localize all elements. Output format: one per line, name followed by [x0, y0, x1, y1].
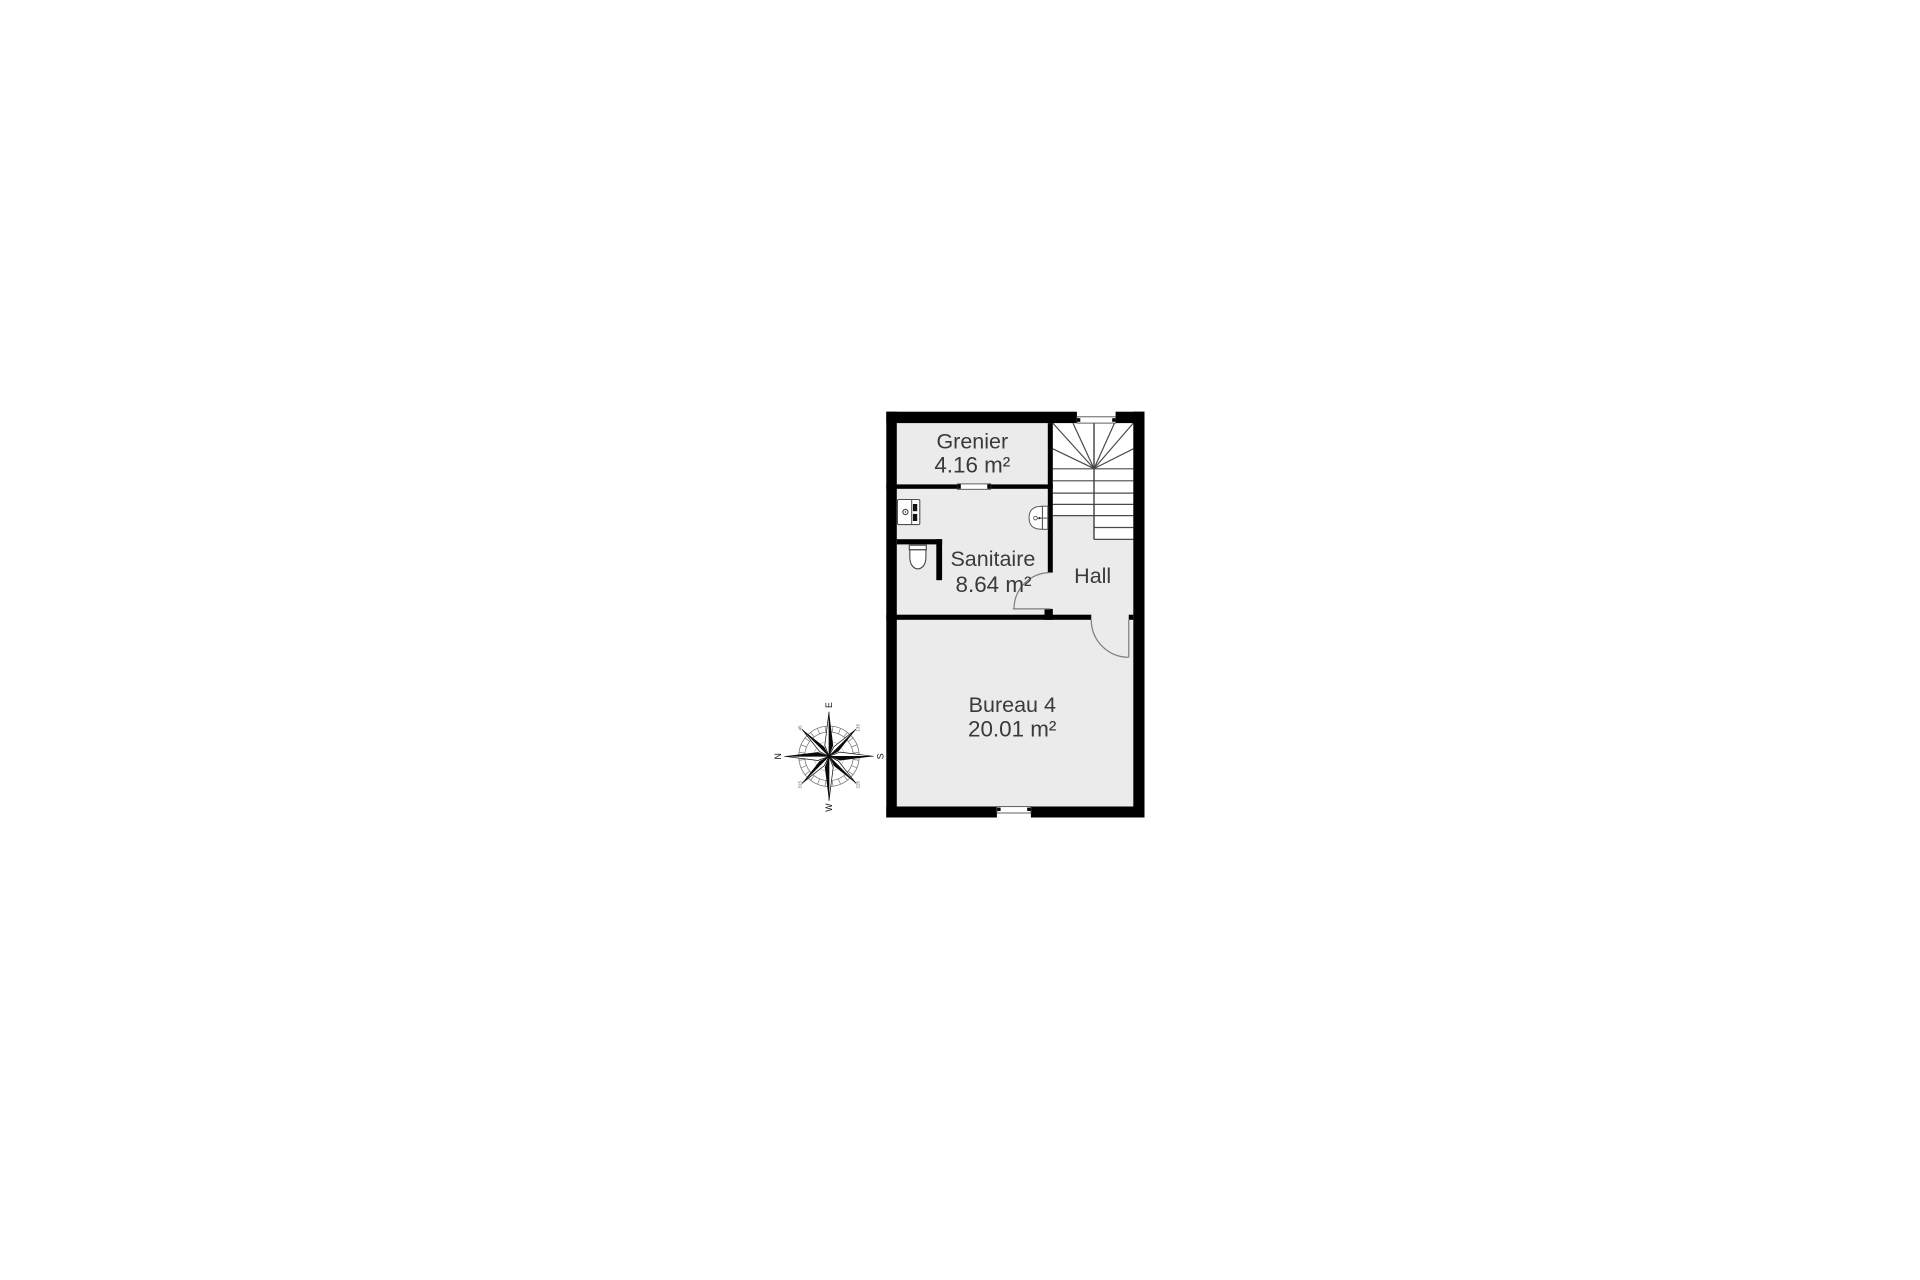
svg-text:Sanitaire: Sanitaire	[950, 547, 1035, 571]
svg-text:N: N	[773, 753, 783, 759]
svg-text:4.16 m²: 4.16 m²	[934, 453, 1010, 478]
svg-text:Bureau 4: Bureau 4	[969, 693, 1056, 717]
svg-text:S: S	[876, 753, 886, 759]
svg-text:135: 135	[856, 724, 861, 732]
svg-text:20.01 m²: 20.01 m²	[968, 716, 1057, 741]
svg-text:E: E	[824, 702, 834, 708]
svg-text:315: 315	[798, 781, 803, 789]
svg-text:Hall: Hall	[1074, 564, 1111, 588]
svg-text:8.64 m²: 8.64 m²	[956, 572, 1032, 597]
svg-text:225: 225	[856, 781, 861, 789]
svg-text:W: W	[824, 803, 834, 812]
svg-text:45: 45	[798, 725, 803, 731]
svg-text:Grenier: Grenier	[936, 429, 1008, 453]
